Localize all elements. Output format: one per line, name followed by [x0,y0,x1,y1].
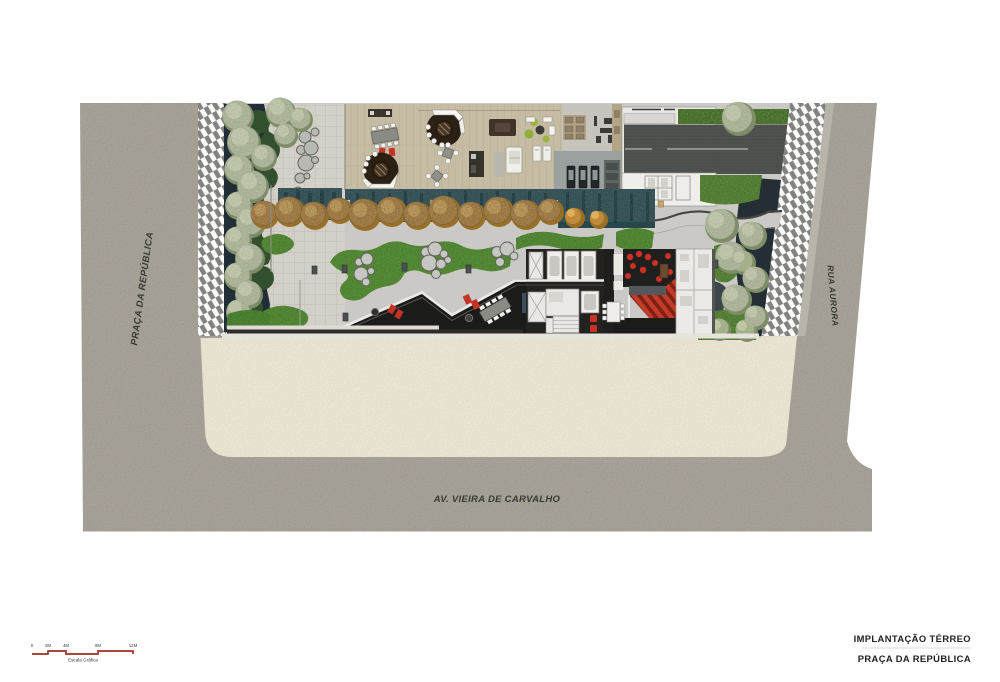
svg-text:AV. VIEIRA DE CARVALHO: AV. VIEIRA DE CARVALHO [433,494,561,505]
svg-text:PRAÇA DA REPÚBLICA: PRAÇA DA REPÚBLICA [858,653,971,664]
svg-text:4M: 4M [63,643,69,648]
svg-text:IMPLANTAÇÃO TÉRREO: IMPLANTAÇÃO TÉRREO [854,633,971,644]
svg-text:2M: 2M [45,643,51,648]
svg-text:12M: 12M [129,643,138,648]
svg-text:Escala Gráfica: Escala Gráfica [68,658,98,663]
svg-text:8M: 8M [95,643,101,648]
